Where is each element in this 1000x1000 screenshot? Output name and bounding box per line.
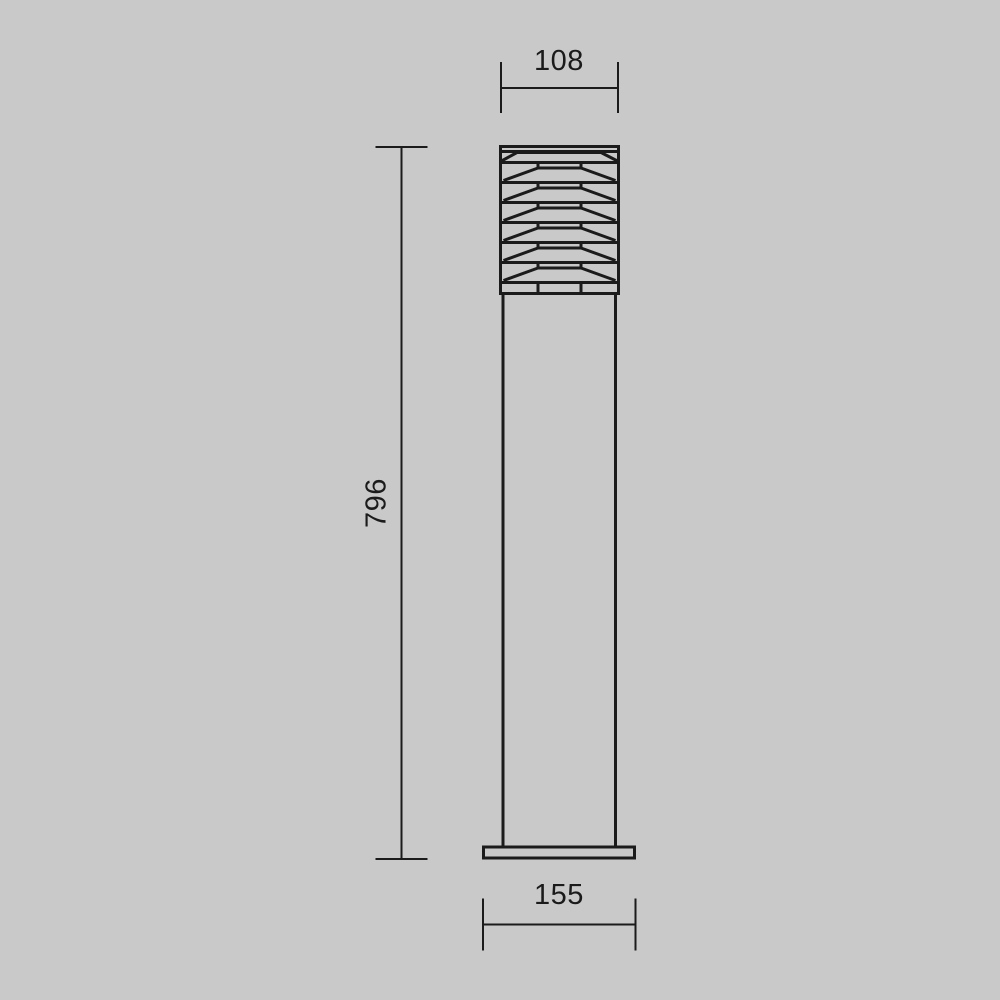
lamp-base-plate [484,847,635,858]
lamp-louvered-head [499,147,620,294]
dimension-label-base-width: 155 [534,879,584,912]
lamp-post-body [503,295,616,846]
louver-slat [504,163,616,181]
lamp-fixture [484,147,635,859]
louver-slat [502,153,618,162]
louver-slat [504,243,616,261]
bollard-light-drawing [0,0,1000,1000]
head-collar-ticks [538,283,581,294]
technical-drawing-canvas: 108 796 155 [0,0,1000,1000]
louver-slat [504,223,616,241]
dimension-annotations [376,62,636,951]
louver-slat [504,203,616,221]
dimension-label-overall-height: 796 [361,478,394,528]
louver-row-lines [499,163,620,283]
louver-slat [504,183,616,201]
dimension-label-head-width: 108 [534,45,584,78]
louver-slat [504,263,616,281]
